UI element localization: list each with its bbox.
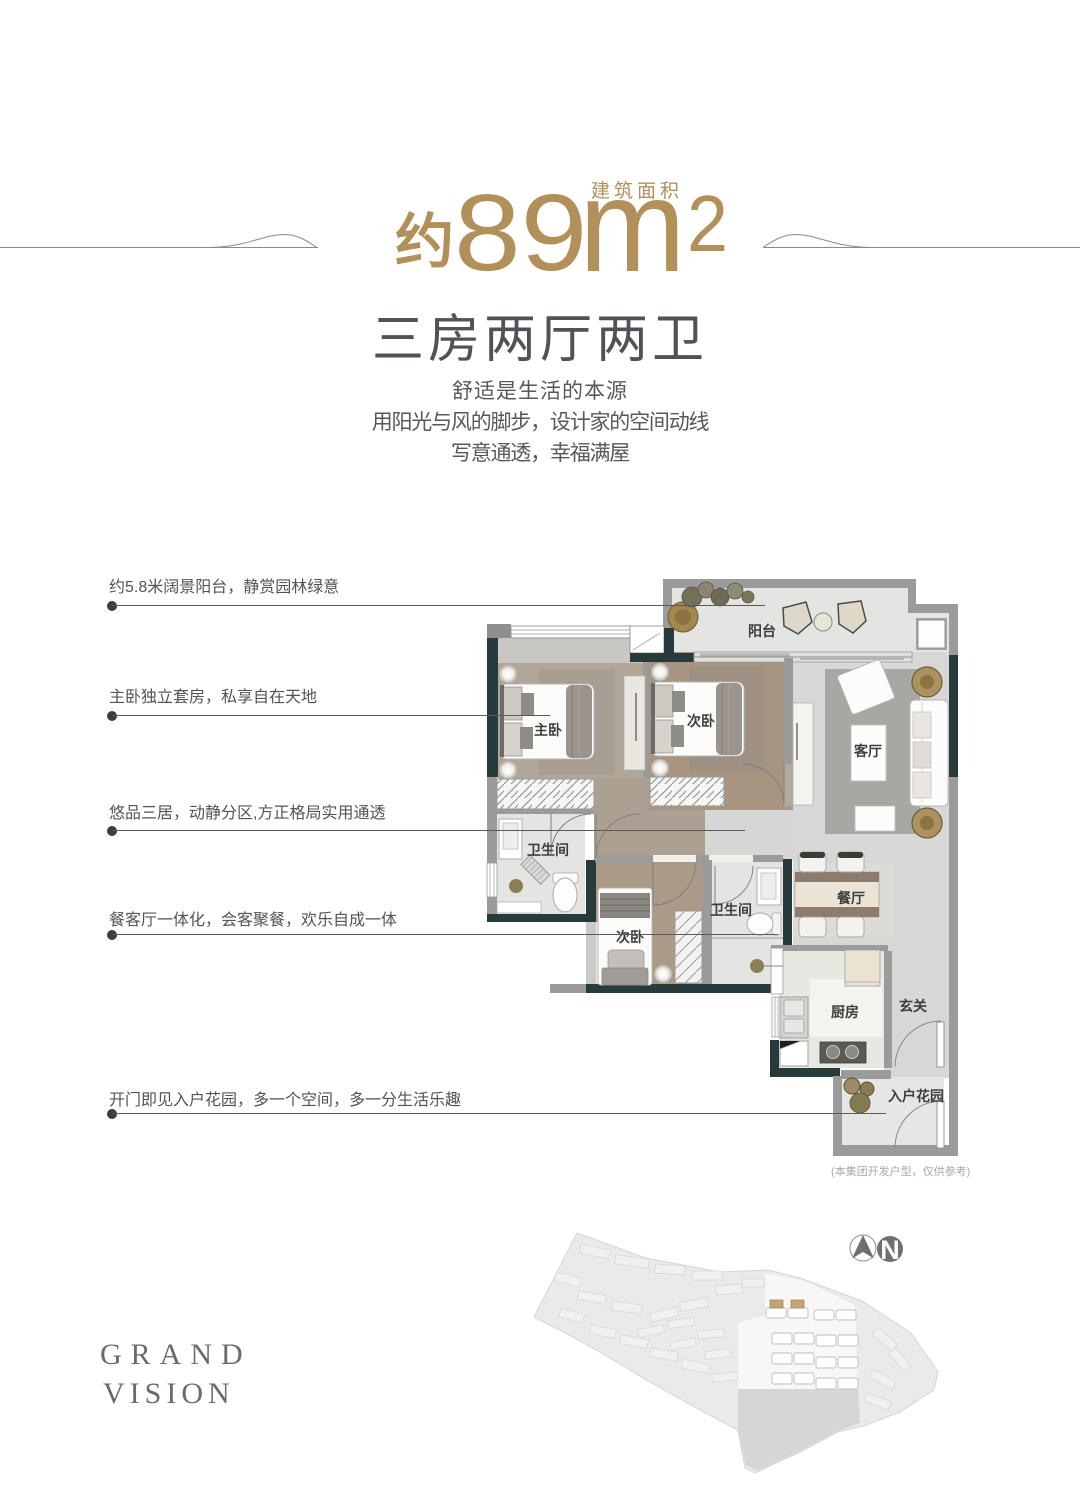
svg-text:次卧: 次卧 <box>616 929 644 945</box>
svg-text:玄关: 玄关 <box>899 998 927 1014</box>
svg-text:入户花园: 入户花园 <box>888 1088 944 1104</box>
svg-text:次卧: 次卧 <box>687 713 715 729</box>
svg-text:餐厅: 餐厅 <box>836 890 865 906</box>
svg-text:卫生间: 卫生间 <box>527 842 569 858</box>
svg-text:厨房: 厨房 <box>831 1004 859 1020</box>
svg-text:主卧: 主卧 <box>534 722 562 738</box>
svg-text:客厅: 客厅 <box>853 743 882 759</box>
svg-text:阳台: 阳台 <box>748 623 776 639</box>
svg-text:卫生间: 卫生间 <box>710 902 752 918</box>
